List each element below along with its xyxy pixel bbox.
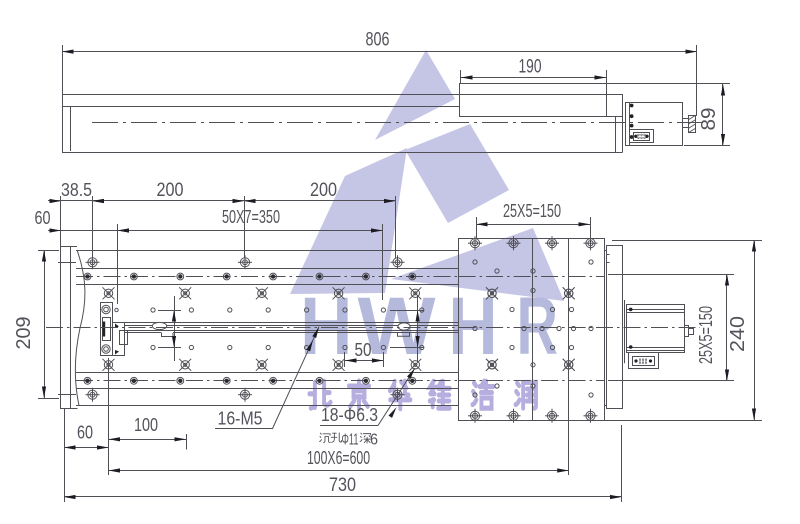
svg-text:89: 89 — [698, 108, 720, 131]
svg-text:25X5=150: 25X5=150 — [696, 306, 716, 364]
svg-text:Φ11: Φ11 — [342, 432, 359, 449]
svg-text:200: 200 — [310, 180, 337, 201]
svg-text:200: 200 — [157, 180, 184, 201]
svg-text:6: 6 — [370, 432, 378, 449]
svg-text:16-M5: 16-M5 — [218, 409, 263, 429]
svg-text:38.5: 38.5 — [61, 180, 92, 200]
svg-text:730: 730 — [329, 475, 356, 496]
svg-text:806: 806 — [366, 30, 390, 51]
svg-text:25X5=150: 25X5=150 — [503, 201, 561, 221]
svg-text:60: 60 — [35, 208, 51, 228]
svg-text:50: 50 — [355, 340, 372, 360]
svg-text:240: 240 — [727, 316, 749, 352]
svg-text:18-Φ6.3: 18-Φ6.3 — [321, 405, 378, 425]
svg-text:100X6=600: 100X6=600 — [307, 448, 370, 468]
svg-text:50X7=350: 50X7=350 — [222, 207, 280, 227]
svg-text:209: 209 — [13, 317, 35, 350]
svg-text:100: 100 — [134, 415, 158, 435]
svg-text:60: 60 — [77, 423, 93, 443]
svg-text:190: 190 — [519, 57, 542, 78]
